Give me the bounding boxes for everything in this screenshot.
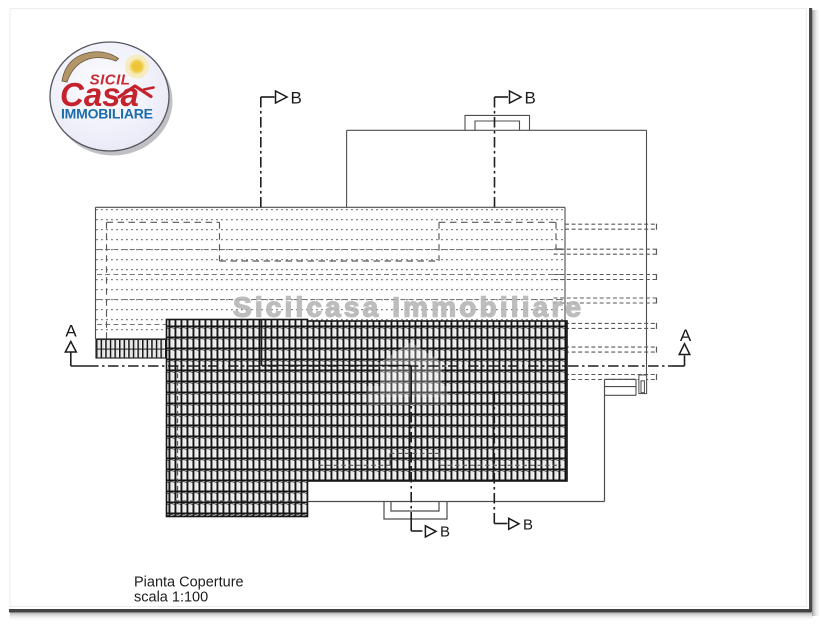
svg-text:A: A bbox=[65, 322, 77, 341]
svg-text:A: A bbox=[680, 326, 692, 345]
svg-text:B: B bbox=[525, 89, 536, 108]
svg-text:B: B bbox=[523, 517, 533, 534]
svg-text:IMMOBILIARE: IMMOBILIARE bbox=[61, 106, 153, 122]
svg-text:scala 1:100: scala 1:100 bbox=[134, 590, 208, 606]
svg-text:B: B bbox=[440, 524, 450, 541]
svg-text:Pianta Coperture: Pianta Coperture bbox=[134, 575, 244, 591]
svg-text:B: B bbox=[291, 89, 302, 108]
svg-text:Sicilcasa Immobiliare: Sicilcasa Immobiliare bbox=[233, 292, 581, 323]
